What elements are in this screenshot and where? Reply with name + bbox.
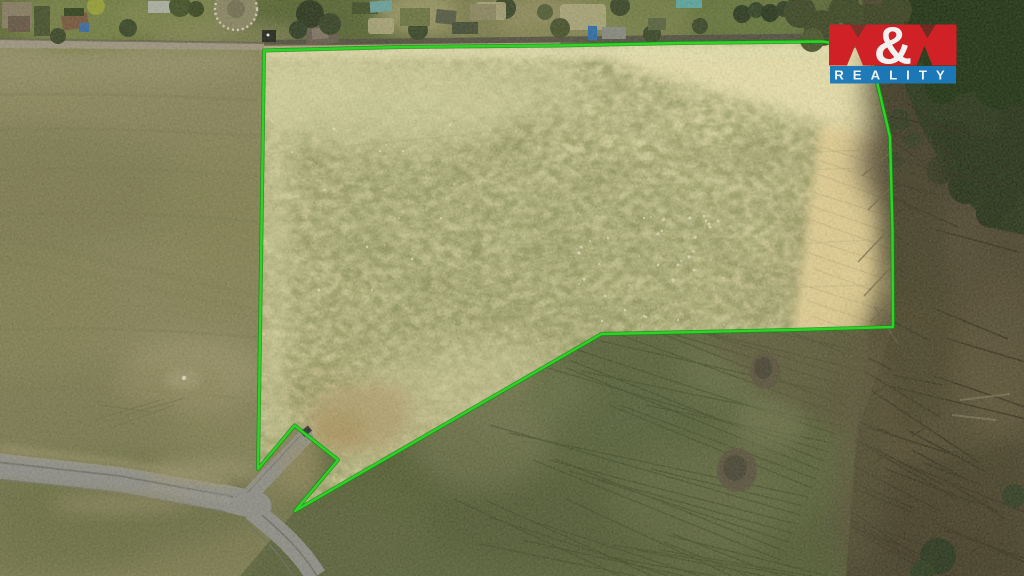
svg-text:REALITY: REALITY — [834, 68, 953, 83]
